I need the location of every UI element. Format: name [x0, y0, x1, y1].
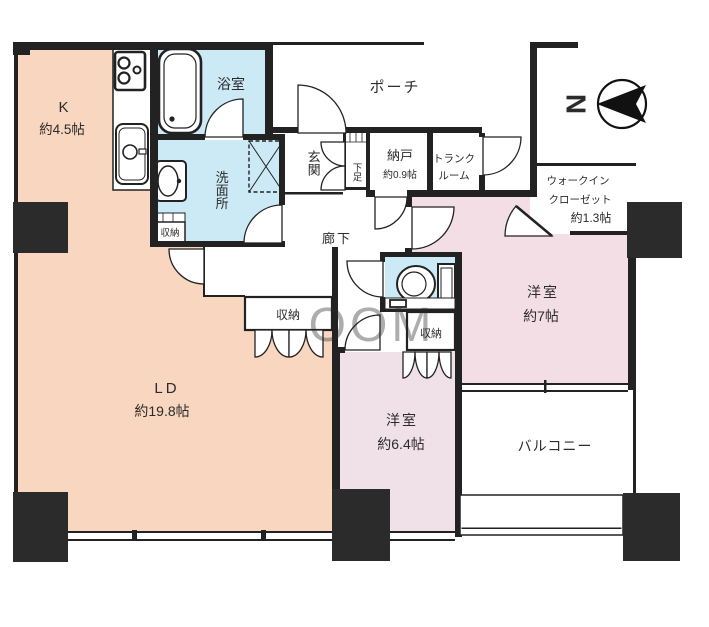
- bathtub-icon: [159, 49, 201, 133]
- floor-plan-drawing: N K 約4.5帖 浴室 洗面所 収納 ポーチ 玄関 下足 納戸 約0.9帖 ト…: [0, 0, 709, 627]
- label-trunk-2: ルーム: [438, 170, 469, 182]
- label-bedroom6: 洋室: [386, 412, 418, 428]
- label-porch: ポーチ: [369, 79, 420, 96]
- label-wic-1: ウォークイン: [547, 175, 610, 187]
- kitchen-sink-icon: [116, 124, 148, 184]
- pillar: [13, 202, 68, 253]
- balcony-rail: [460, 495, 623, 535]
- pillar: [627, 202, 682, 258]
- pillar: [13, 492, 68, 562]
- label-bedroom7: 洋室: [527, 284, 559, 300]
- label-washroom: 洗面所: [214, 171, 229, 210]
- label-balcony: バルコニー: [518, 438, 593, 454]
- label-ld: LD: [154, 380, 179, 397]
- label-corridor: 廊下: [322, 231, 352, 246]
- label-bedroom7-size: 約7帖: [523, 308, 559, 324]
- label-washroom-storage: 収納: [160, 227, 179, 239]
- label-kitchen-size: 約4.5帖: [39, 122, 85, 137]
- label-storeroom-size: 約0.9帖: [383, 168, 417, 181]
- watermark: OOM: [309, 299, 436, 352]
- compass-label: N: [560, 94, 591, 114]
- label-wic-2: クローゼット: [549, 194, 612, 206]
- label-ld-size: 約19.8帖: [134, 403, 189, 419]
- label-wic-3: 約1.3帖: [571, 210, 612, 225]
- compass-icon: N: [560, 80, 646, 128]
- pillar: [332, 489, 390, 561]
- label-bedroom6-size: 約6.4帖: [377, 436, 424, 452]
- stove-icon: [115, 52, 145, 90]
- label-bath: 浴室: [217, 76, 245, 92]
- label-entrance: 玄関: [306, 150, 321, 177]
- floor-plan: N K 約4.5帖 浴室 洗面所 収納 ポーチ 玄関 下足 納戸 約0.9帖 ト…: [0, 0, 709, 627]
- label-ld-storage: 収納: [276, 308, 300, 322]
- label-trunk-1: トランク: [433, 153, 475, 165]
- label-kitchen: K: [58, 99, 69, 116]
- label-storeroom: 納戸: [387, 148, 413, 163]
- label-shoe-cabinet: 下足: [350, 163, 362, 183]
- pillar: [623, 493, 680, 561]
- washbasin-icon: [156, 161, 186, 201]
